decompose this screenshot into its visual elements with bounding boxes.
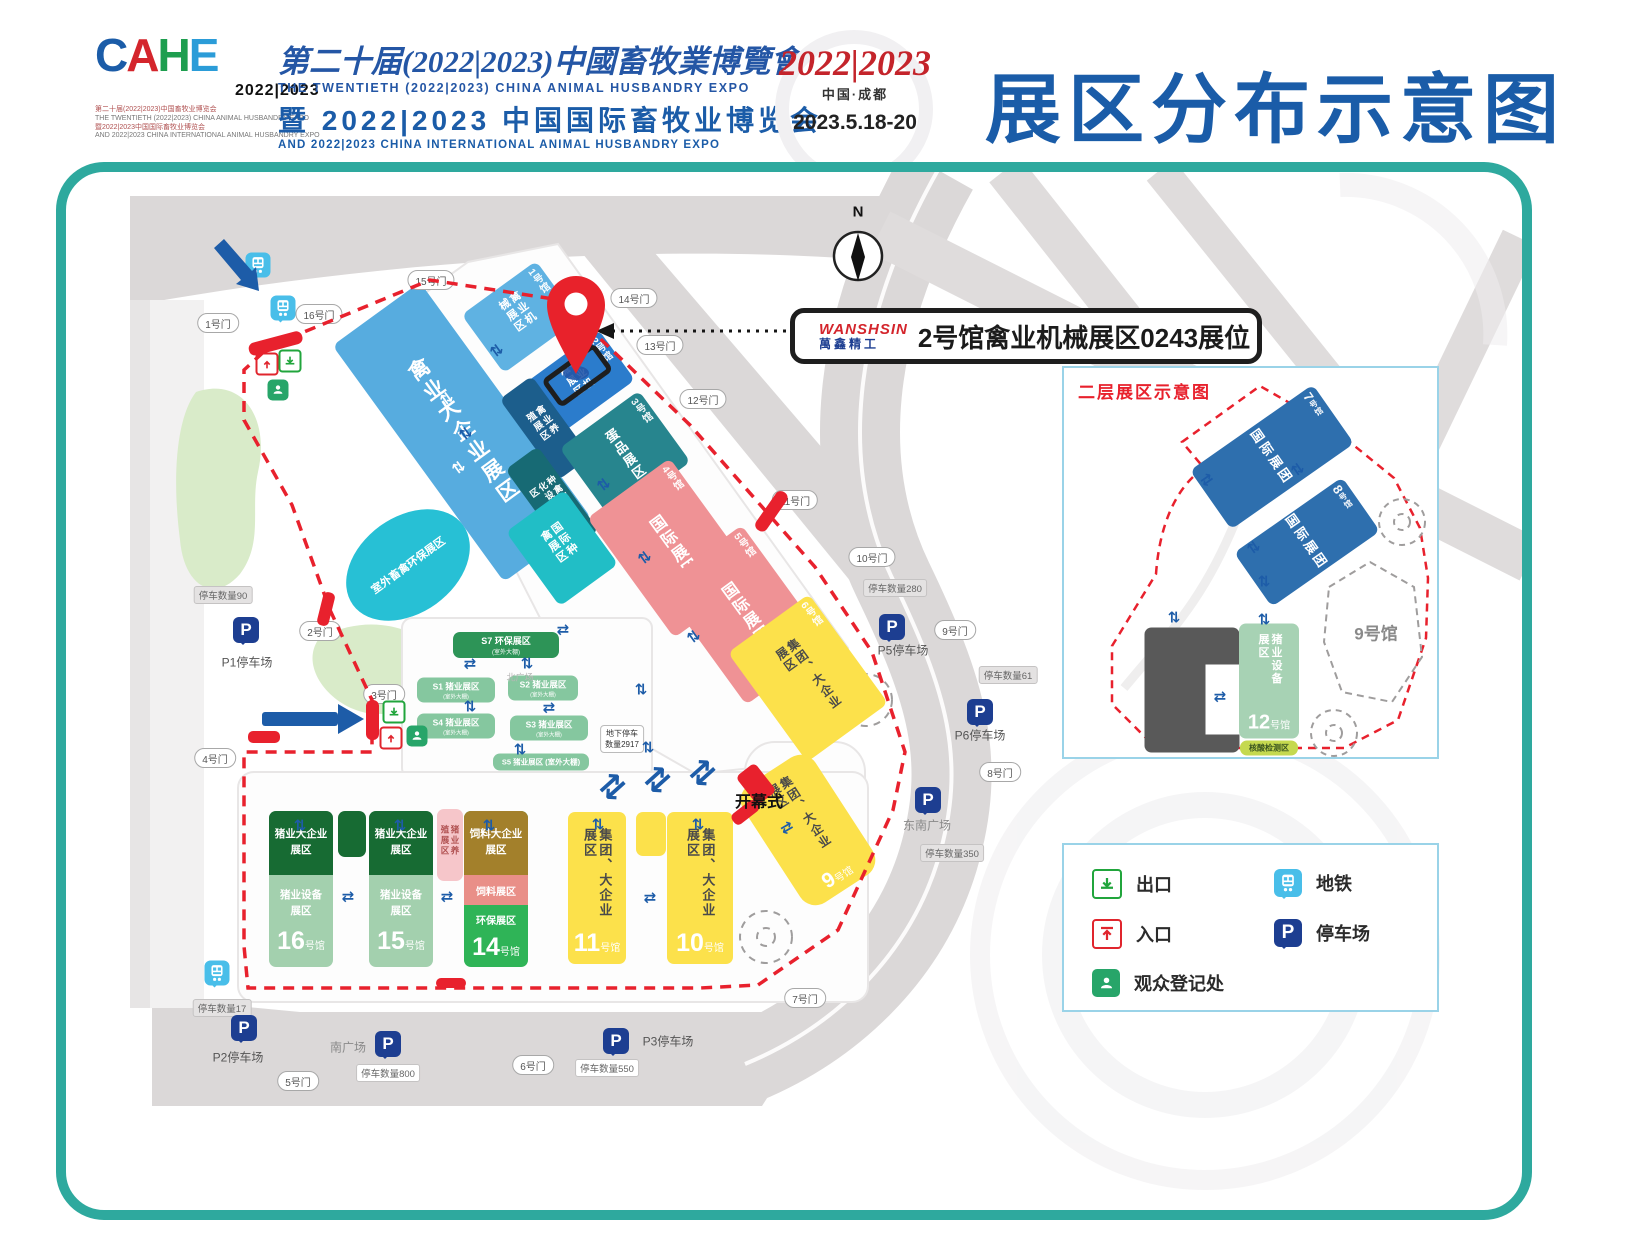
hall-label: 国际展团 (1247, 426, 1296, 487)
hall-label: 集团、大企业展区 (685, 828, 716, 924)
zone-label: 猪业养殖展区 (440, 825, 460, 865)
expo-map-page: CAHE 2022|2023 第二十届(2022|2023)中国畜牧业博览会 T… (0, 0, 1634, 1247)
zone-sublabel: (室外大棚) (492, 647, 520, 656)
parking-icon: P (233, 617, 259, 643)
event-city: 中国·成都 (760, 84, 950, 103)
exit-icon (383, 701, 406, 724)
exit-icon (1092, 869, 1122, 899)
event-mark: 2022|2023 中国·成都 2023.5.18-20 (760, 42, 950, 135)
parking-icon: P (603, 1028, 629, 1054)
page-title: 展区分布示意图 (985, 48, 1566, 158)
gate-5: 5号门 (277, 1071, 319, 1091)
hall-label: 禽业机械展区 (495, 289, 545, 345)
parking-count-p3: 停车数量550 (575, 1059, 639, 1077)
parking-label-p3: P3停车场 (643, 1033, 694, 1050)
wanshsin-brand-cn: 萬鑫精工 (819, 338, 908, 351)
subway-icon (246, 253, 271, 278)
escalator-icon: ⇅ (692, 818, 705, 833)
zone-label: 国际种禽展区 (537, 520, 587, 576)
zone-pig-breeding: 猪业养殖展区 (437, 809, 463, 881)
underground-parking-note: 地下停车 数量2917 (600, 725, 644, 753)
gate-14: 14号门 (610, 288, 657, 308)
legend-item-registration: 观众登记处 (1092, 969, 1224, 997)
registration-icon (407, 726, 428, 747)
gate-16: 16号门 (295, 304, 342, 324)
zone-pig-equipment: 猪业设备展区 15号馆 (369, 875, 433, 967)
expo-title-cn: 第二十届(2022|2023)中國畜牧業博覽會 (278, 36, 822, 81)
legend-panel: 出口 入口 观众登记处 地铁 P (1062, 843, 1439, 1012)
gate-2: 2号门 (299, 621, 341, 641)
hall-14-number: 14号馆 (472, 935, 520, 960)
expo-title-block: 第二十届(2022|2023)中國畜牧業博覽會 THE TWENTIETH (2… (278, 36, 822, 151)
registration-icon (268, 380, 289, 401)
event-dates: 2023.5.18-20 (760, 111, 950, 135)
entrance-icon (1092, 919, 1122, 949)
escalator-icon: ⇅ (642, 741, 655, 756)
exit-icon (279, 350, 302, 373)
zone-s3-pig: S3 猪业展区 (室外大棚) (510, 716, 588, 741)
escalator-icon: ⇅ (294, 819, 307, 834)
escalator-icon: ⇅ (592, 818, 605, 833)
hall-connector (338, 811, 366, 857)
hall-label: 集团、大企业展区 (772, 636, 844, 721)
parking-icon: P (879, 614, 905, 640)
south-plaza-label: 南广场 (330, 1039, 366, 1056)
parking-count-south: 停车数量800 (356, 1064, 420, 1082)
entrance-icon (380, 727, 403, 750)
subway-icon (271, 296, 296, 321)
hall-label: 蛋品展区 (601, 426, 649, 484)
hall-label: 禽业机械展区 (555, 357, 601, 408)
zone-label: 核酸检测区 (1249, 743, 1289, 754)
escalator-icon: ⇄ (543, 701, 556, 716)
zone-s5-pig: S5 猪业展区 (室外大棚) (493, 754, 589, 771)
hall-15-number: 15号馆 (377, 929, 425, 954)
escalator-icon: ⇅ (1258, 613, 1271, 628)
parking-count-southeast: 停车数量350 (920, 844, 984, 862)
hall-label: 集团、大企业展区 (582, 828, 613, 924)
gate-1: 1号门 (197, 313, 239, 333)
legend-item-subway: 地铁 (1274, 869, 1352, 897)
gate-6: 6号门 (512, 1055, 554, 1075)
entrance-icon (256, 353, 279, 376)
zone-label: 饲料展区 (476, 883, 516, 898)
zone-sublabel: (室外大棚) (536, 730, 562, 738)
expo-subtitle-en: AND 2022|2023 CHINA INTERNATIONAL ANIMAL… (278, 139, 822, 151)
gate-4: 4号门 (194, 748, 236, 768)
inset-hall-9-label: 9号馆 (1354, 620, 1397, 645)
legend-item-parking: P 停车场 (1274, 919, 1370, 947)
escalator-icon: ⇅ (1168, 611, 1181, 626)
zone-s4-pig: S4 猪业展区 (室外大棚) (417, 714, 495, 739)
legend-item-exit: 出口 (1092, 869, 1172, 899)
subway-icon (1274, 869, 1302, 897)
zone-label: 环保展区 (476, 912, 516, 927)
parking-label-p2: P2停车场 (213, 1049, 264, 1066)
escalator-icon: ⇅ (464, 700, 477, 715)
parking-label-p1: P1停车场 (222, 654, 273, 671)
expo-title-en: THE TWENTIETH (2022|2023) CHINA ANIMAL H… (278, 81, 822, 95)
underground-parking-line2: 数量2917 (605, 739, 639, 750)
event-years: 2022|2023 (760, 42, 950, 84)
legend-label-subway: 地铁 (1316, 870, 1352, 896)
zone-eco: 环保展区 14号馆 (464, 905, 528, 967)
expo-subtitle-cn: 暨 2022|2023 中国国际畜牧业博览会 (278, 99, 822, 139)
escalator-icon: ⇅ (394, 819, 407, 834)
inset-title: 二层展区示意图 (1078, 378, 1211, 403)
escalator-icon: ⇅ (635, 683, 648, 698)
compass-north-label: N (853, 204, 864, 221)
parking-count-p5: 停车数量280 (863, 579, 927, 597)
zone-feed-big-enterprise: 饲料大企业展区 (464, 811, 528, 875)
map-canvas: 禽业大企业展区 1号馆 禽业机械展区 2号馆 禽业机械展区 禽业养殖展区 种禽孵… (62, 168, 1524, 1212)
hall-10-number: 10号馆 (676, 931, 724, 956)
parking-icon: P (1274, 919, 1302, 947)
parking-icon: P (967, 699, 993, 725)
zone-label: 饲料大企业展区 (468, 827, 525, 859)
zone-label: S3 猪业展区 (526, 718, 573, 730)
gate-15: 15号门 (407, 270, 454, 290)
parking-icon: P (231, 1015, 257, 1041)
registration-icon (1092, 969, 1120, 997)
inset-nucleic-zone: 核酸检测区 (1240, 741, 1298, 756)
legend-label-entrance: 入口 (1136, 921, 1172, 947)
zone-sublabel: (室外大棚) (443, 728, 469, 736)
zone-label: S1 猪业展区 (433, 680, 480, 692)
escalator-icon: ⇄ (342, 890, 355, 905)
inset-hall-12: 猪业设备展区 12号馆 (1239, 624, 1299, 739)
zone-label: 猪业设备展区 (278, 888, 324, 920)
hall-label: 国际展团 (1282, 511, 1331, 572)
zone-feed: 饲料展区 (464, 875, 528, 905)
escalator-icon: ⇅ (483, 819, 496, 834)
hall-16-number: 16号馆 (277, 929, 325, 954)
zone-label: S7 环保展区 (481, 634, 531, 647)
parking-icon: P (915, 787, 941, 813)
hall-11: 集团、大企业展区 11号馆 (568, 812, 626, 964)
booth-callout-text: 2号馆禽业机械展区0243展位 (918, 318, 1250, 355)
gate-13: 13号门 (636, 335, 683, 355)
escalator-icon: ⇅ (514, 743, 527, 758)
subway-icon (205, 961, 230, 986)
parking-count-p6: 停车数量61 (979, 666, 1038, 684)
underground-parking-line1: 地下停车 (605, 728, 639, 739)
zone-label: S4 猪业展区 (433, 716, 480, 728)
gate-9: 9号门 (934, 620, 976, 640)
gate-10: 10号门 (848, 547, 895, 567)
zone-s1-pig: S1 猪业展区 (室外大棚) (417, 678, 495, 703)
legend-label-registration: 观众登记处 (1134, 970, 1224, 996)
legend-item-entrance: 入口 (1092, 919, 1172, 949)
inset-hall-12-number: 12号馆 (1248, 713, 1290, 733)
zone-pig-equipment: 猪业设备展区 16号馆 (269, 875, 333, 967)
parking-count-p1: 停车数量90 (194, 586, 253, 604)
legend-label-exit: 出口 (1136, 871, 1172, 897)
legend-label-parking: 停车场 (1316, 920, 1370, 946)
escalator-icon: ⇄ (441, 890, 454, 905)
booth-callout: WANSHSIN 萬鑫精工 2号馆禽业机械展区0243展位 (790, 308, 1262, 364)
escalator-icon: ⇄ (557, 623, 570, 638)
wanshsin-brand-en: WANSHSIN (819, 322, 908, 338)
gate-12: 12号门 (679, 389, 726, 409)
escalator-icon: ⇄ (464, 657, 477, 672)
zone-label: 猪业设备展区 (378, 888, 424, 920)
zone-sublabel: (室外大棚) (530, 690, 556, 698)
gate-7: 7号门 (784, 988, 826, 1008)
opening-ceremony-label: 开幕式 (735, 788, 783, 812)
escalator-icon: ⇅ (1258, 575, 1271, 590)
gate-11: 11号门 (772, 490, 818, 510)
hall-10: 集团、大企业展区 10号馆 (667, 812, 733, 964)
gate-8: 8号门 (979, 762, 1021, 782)
escalator-icon: ⇄ (644, 891, 657, 906)
hall-11-number: 11号馆 (574, 931, 620, 956)
hall-connector (636, 812, 666, 856)
second-floor-inset: 二层展区示意图 7号馆 国际展团 8号馆 国际展团 猪业设备展区 12号馆 核酸… (1062, 366, 1439, 759)
escalator-icon: ⇅ (521, 657, 534, 672)
hall-label: 猪业设备展区 (1256, 634, 1282, 686)
parking-icon: P (375, 1031, 401, 1057)
hall-14: 饲料大企业展区 饲料展区 环保展区 14号馆 (464, 811, 528, 967)
escalator-icon: ⇄ (1214, 690, 1227, 705)
zone-s7-eco: S7 环保展区 (室外大棚) (453, 632, 559, 658)
